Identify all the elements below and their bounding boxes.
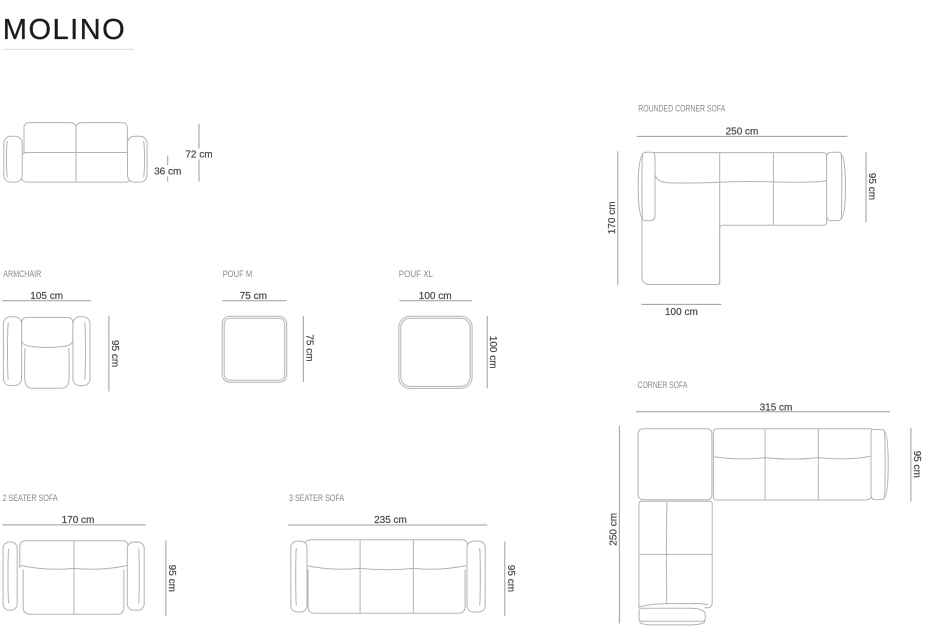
svg-text:75 cm: 75 cm — [240, 291, 267, 302]
svg-text:100 cm: 100 cm — [419, 291, 452, 302]
svg-text:2 SEATER SOFA: 2 SEATER SOFA — [3, 493, 58, 503]
svg-text:235 cm: 235 cm — [374, 515, 407, 526]
svg-text:ROUNDED CORNER SOFA: ROUNDED CORNER SOFA — [638, 103, 725, 113]
svg-text:ARMCHAIR: ARMCHAIR — [3, 269, 41, 279]
svg-text:36 cm: 36 cm — [154, 167, 181, 178]
svg-text:100 cm: 100 cm — [487, 336, 498, 369]
svg-text:75 cm: 75 cm — [303, 334, 314, 361]
svg-text:250 cm: 250 cm — [608, 513, 619, 546]
svg-text:95 cm: 95 cm — [109, 340, 120, 367]
svg-text:POUF M: POUF M — [223, 269, 253, 279]
svg-text:95 cm: 95 cm — [166, 565, 177, 592]
svg-text:72 cm: 72 cm — [185, 150, 212, 161]
svg-text:MOLINO: MOLINO — [3, 14, 126, 46]
svg-text:100 cm: 100 cm — [665, 307, 698, 318]
svg-text:250 cm: 250 cm — [726, 127, 759, 138]
svg-text:95 cm: 95 cm — [911, 451, 922, 478]
svg-text:CORNER SOFA: CORNER SOFA — [638, 380, 688, 390]
svg-text:95 cm: 95 cm — [866, 173, 877, 200]
svg-text:315 cm: 315 cm — [760, 402, 793, 413]
svg-text:95 cm: 95 cm — [505, 565, 516, 592]
svg-text:105 cm: 105 cm — [30, 291, 63, 302]
svg-text:170 cm: 170 cm — [607, 201, 618, 234]
svg-text:3 SEATER SOFA: 3 SEATER SOFA — [289, 493, 344, 503]
svg-text:170 cm: 170 cm — [62, 515, 95, 526]
svg-text:POUF XL: POUF XL — [399, 269, 433, 279]
